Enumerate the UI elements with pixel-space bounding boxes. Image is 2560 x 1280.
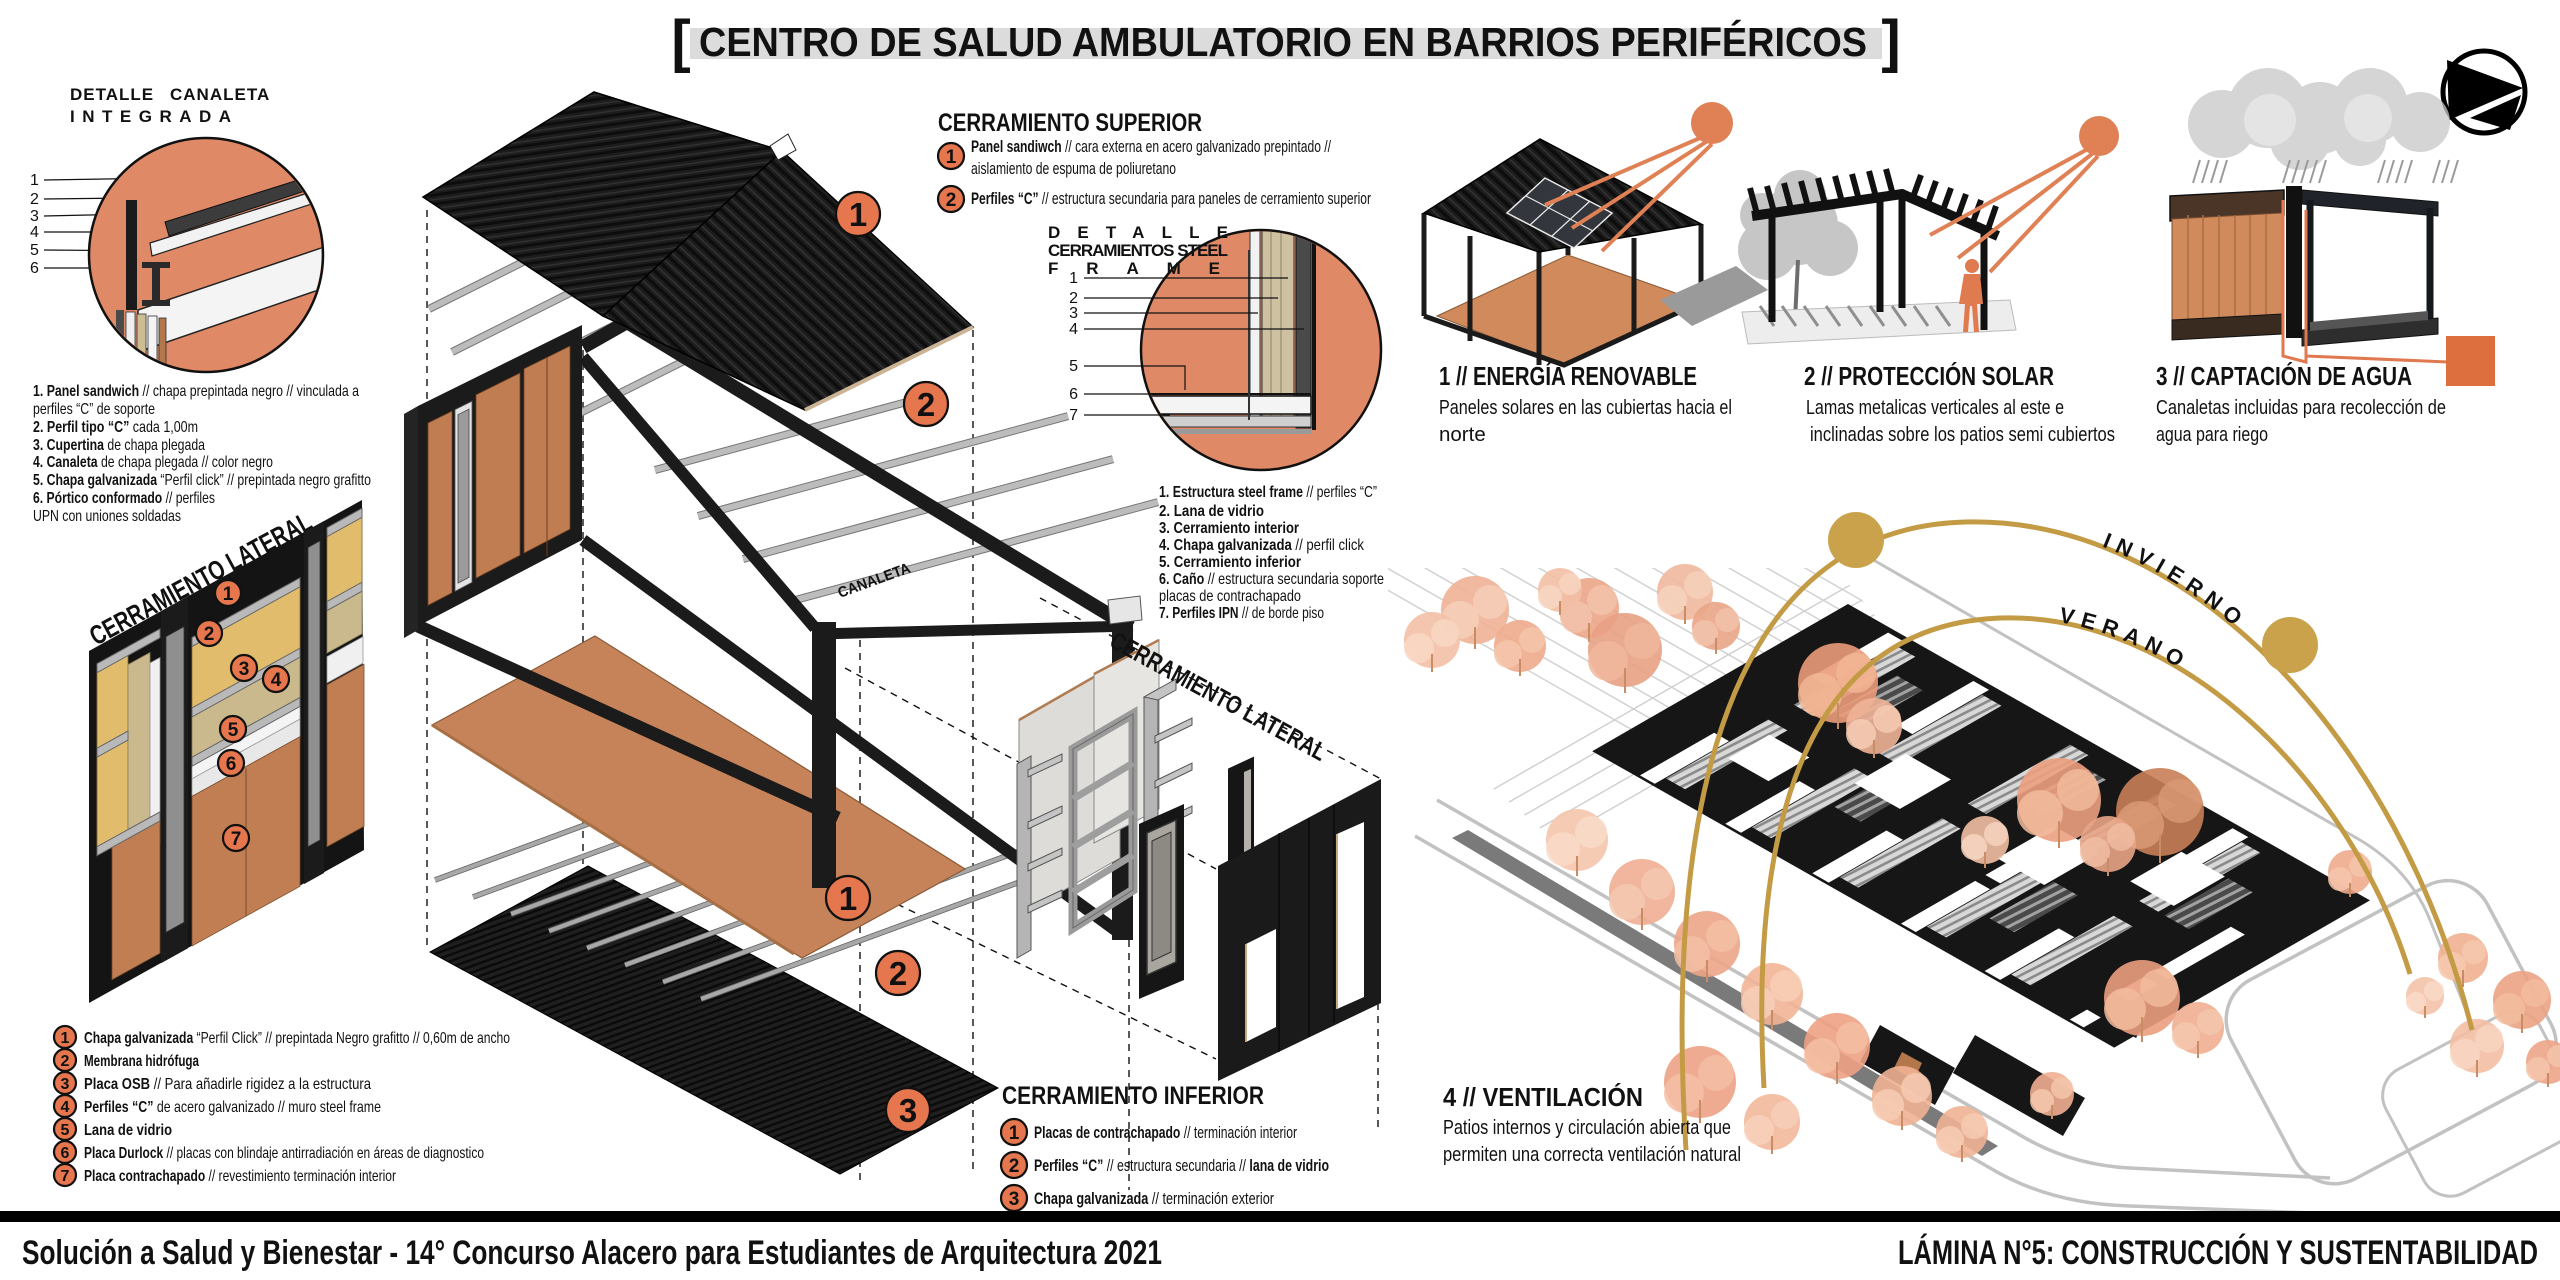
svg-text:6: 6	[1069, 386, 1078, 403]
svg-text:4: 4	[1069, 321, 1078, 338]
svg-text:1: 1	[946, 147, 957, 168]
svg-text:5. Chapa galvanizada “Perfil c: 5. Chapa galvanizada “Perfil click” // p…	[33, 472, 371, 489]
svg-text:INTEGRADA: INTEGRADA	[70, 107, 239, 126]
svg-text:Perfiles “C” // estructura sec: Perfiles “C” // estructura secundaria pa…	[971, 190, 1371, 208]
svg-text:4: 4	[271, 670, 282, 691]
svg-text:Chapa galvanizada // terminaci: Chapa galvanizada // terminación exterio…	[1034, 1190, 1274, 1208]
svg-text:Panel sandiwch // cara externa: Panel sandiwch // cara externa en acero …	[971, 138, 1331, 156]
svg-text:]: ]	[1881, 9, 1900, 74]
svg-text:Placas de contrachapado // te: Placas de contrachapado // terminación i…	[1034, 1124, 1297, 1142]
svg-text:6. Pórtico conformado // perfi: 6. Pórtico conformado // perfiles	[33, 490, 215, 507]
svg-text:permiten una correcta ventilac: permiten una correcta ventilación natura…	[1443, 1143, 1741, 1166]
svg-text:5. Cerramiento inferior: 5. Cerramiento inferior	[1159, 554, 1301, 571]
svg-text:Placa OSB // Para añadirle rig: Placa OSB // Para añadirle rigidez a la …	[84, 1076, 371, 1093]
svg-text:1: 1	[223, 584, 234, 605]
svg-text:5: 5	[30, 242, 39, 259]
svg-text:1: 1	[1069, 270, 1078, 287]
svg-text:2: 2	[946, 190, 957, 211]
svg-text:7: 7	[1069, 407, 1078, 424]
svg-text:6. Caño // estructura secundar: 6. Caño // estructura secundaria soporte	[1159, 571, 1384, 588]
svg-text:6: 6	[61, 1145, 70, 1162]
svg-text:6: 6	[226, 754, 237, 775]
svg-text:DETALLE: DETALLE	[70, 85, 154, 104]
svg-text:3: 3	[239, 659, 250, 680]
svg-text:5: 5	[1069, 358, 1078, 375]
svg-text:3. Cerramiento interior: 3. Cerramiento interior	[1159, 520, 1299, 537]
svg-text:agua para riego: agua para riego	[2156, 423, 2268, 446]
svg-text:2: 2	[61, 1053, 70, 1070]
svg-text:[: [	[671, 9, 690, 74]
svg-text:placas de contrachapado: placas de contrachapado	[1159, 588, 1301, 605]
svg-text:Canaletas incluidas para recol: Canaletas incluidas para recolección de	[2156, 396, 2446, 419]
svg-text:3: 3	[30, 208, 39, 225]
svg-text:Perfiles “C” de acero galvaniz: Perfiles “C” de acero galvanizado // mur…	[84, 1099, 381, 1116]
svg-text:1. Estructura steel frame // p: 1. Estructura steel frame // perfiles “C…	[1159, 484, 1377, 501]
svg-text:1. Panel sandwich // chapa pre: 1. Panel sandwich // chapa prepintada ne…	[33, 383, 359, 400]
svg-text:Solución a Salud y Bienestar -: Solución a Salud y Bienestar - 14° Concu…	[22, 1234, 1162, 1272]
svg-text:2: 2	[917, 386, 935, 423]
svg-text:CERRAMIENTO SUPERIOR: CERRAMIENTO SUPERIOR	[938, 109, 1202, 137]
svg-text:aislamiento de espuma de poliu: aislamiento de espuma de poliuretano	[971, 160, 1176, 178]
svg-text:1: 1	[61, 1030, 70, 1047]
svg-text:7: 7	[231, 829, 242, 850]
svg-text:Lana de vidrio: Lana de vidrio	[84, 1122, 172, 1139]
svg-text:1: 1	[839, 880, 857, 917]
svg-text:4. Canaleta de chapa plegada /: 4. Canaleta de chapa plegada // color ne…	[33, 454, 273, 471]
svg-text:7: 7	[61, 1168, 70, 1185]
svg-text:7. Perfiles IPN // de borde pi: 7. Perfiles IPN // de borde piso	[1159, 605, 1324, 622]
svg-text:3 // CAPTACIÓN DE AGUA: 3 // CAPTACIÓN DE AGUA	[2156, 361, 2412, 391]
svg-text:CANALETA: CANALETA	[170, 85, 270, 104]
svg-text:1: 1	[30, 172, 39, 189]
svg-text:3. Cupertina de chapa plegada: 3. Cupertina de chapa plegada	[33, 437, 205, 454]
svg-text:1: 1	[849, 196, 867, 233]
svg-text:CERRAMIENTO INFERIOR: CERRAMIENTO INFERIOR	[1002, 1082, 1264, 1110]
svg-text:4 // VENTILACIÓN: 4 // VENTILACIÓN	[1443, 1082, 1643, 1112]
svg-text:2: 2	[204, 624, 215, 645]
svg-text:Placa Durlock // placas con bl: Placa Durlock // placas con blindaje ant…	[84, 1145, 484, 1162]
svg-text:Perfiles “C” // estructura sec: Perfiles “C” // estructura secundaria //…	[1034, 1157, 1329, 1175]
svg-text:4: 4	[30, 224, 39, 241]
svg-text:2: 2	[30, 191, 39, 208]
svg-text:inclinadas sobre los patios se: inclinadas sobre los patios semi cubiert…	[1810, 423, 2115, 446]
svg-text:UPN con uniones soldadas: UPN con uniones soldadas	[33, 508, 181, 525]
svg-text:2. Lana de vidrio: 2. Lana de vidrio	[1159, 503, 1264, 520]
svg-text:norte: norte	[1439, 423, 1486, 446]
svg-text:3: 3	[899, 1092, 917, 1129]
svg-text:LÁMINA N°5: CONSTRUCCIÓN Y SUS: LÁMINA N°5: CONSTRUCCIÓN Y SUSTENTABILID…	[1898, 1234, 2538, 1272]
svg-text:1 // ENERGÍA RENOVABLE: 1 // ENERGÍA RENOVABLE	[1439, 361, 1697, 391]
svg-text:Paneles solares en las cubiert: Paneles solares en las cubiertas hacia e…	[1439, 396, 1732, 419]
svg-text:4: 4	[61, 1099, 70, 1116]
svg-text:Chapa galvanizada “Perfil Clic: Chapa galvanizada “Perfil Click” // prep…	[84, 1030, 510, 1047]
svg-text:2 // PROTECCIÓN SOLAR: 2 // PROTECCIÓN SOLAR	[1804, 361, 2054, 391]
svg-text:5: 5	[61, 1122, 70, 1139]
svg-text:CENTRO DE SALUD AMBULATORIO EN: CENTRO DE SALUD AMBULATORIO EN BARRIOS P…	[699, 19, 1867, 65]
svg-text:2: 2	[1009, 1156, 1020, 1177]
svg-text:Patios internos y circulación: Patios internos y circulación abierta qu…	[1443, 1116, 1731, 1139]
svg-text:6: 6	[30, 260, 39, 277]
svg-text:1: 1	[1009, 1123, 1020, 1144]
svg-text:CERRAMIENTOS STEEL: CERRAMIENTOS STEEL	[1048, 241, 1228, 260]
svg-text:Placa contrachapado // revesti: Placa contrachapado // revestimiento ter…	[84, 1168, 397, 1185]
svg-text:Membrana hidrófuga: Membrana hidrófuga	[84, 1053, 199, 1070]
svg-text:3: 3	[1069, 305, 1078, 322]
svg-text:2. Perfil tipo “C” cada 1,00m: 2. Perfil tipo “C” cada 1,00m	[33, 419, 198, 436]
svg-text:4. Chapa galvanizada // perfil: 4. Chapa galvanizada // perfil click	[1159, 537, 1365, 554]
svg-text:5: 5	[228, 720, 239, 741]
svg-text:perfiles “C” de soporte: perfiles “C” de soporte	[33, 401, 155, 418]
svg-text:3: 3	[1009, 1189, 1020, 1210]
svg-text:3: 3	[61, 1076, 70, 1093]
svg-text:2: 2	[889, 955, 907, 992]
svg-text:Lamas metalicas verticales al: Lamas metalicas verticales al este e	[1806, 396, 2064, 419]
